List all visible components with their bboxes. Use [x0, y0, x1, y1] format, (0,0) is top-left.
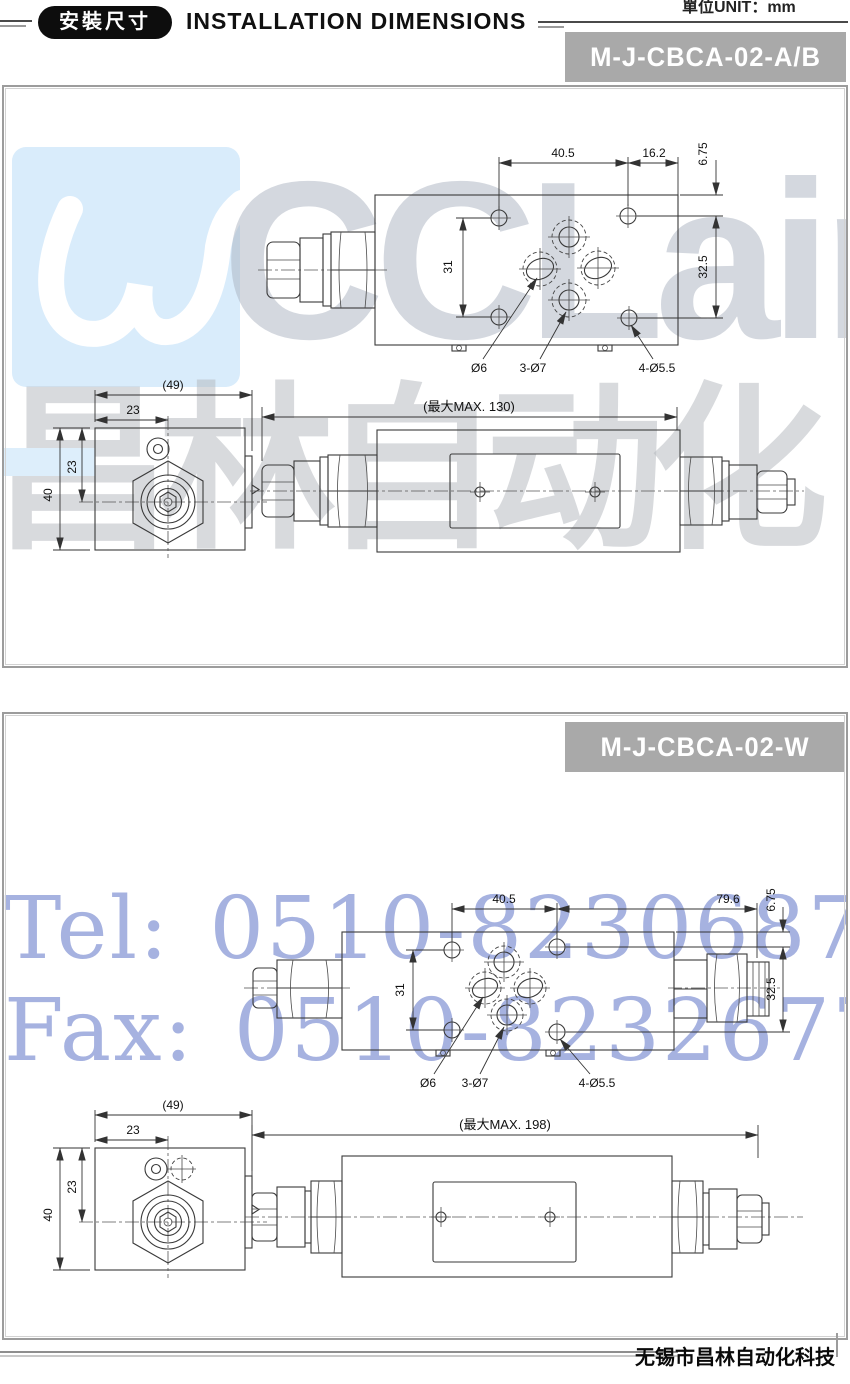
- dim-label: 6.75: [696, 142, 710, 166]
- dimensions: (49) 23 40 23: [41, 378, 252, 550]
- dim-label: 31: [441, 260, 455, 274]
- dim-label: 32.5: [764, 977, 778, 1001]
- dim-label: 16.2: [642, 146, 666, 160]
- dim-label: 40: [41, 1208, 55, 1222]
- corner-holes-label: 4-Ø5.5: [579, 1076, 616, 1090]
- dim-label: (49): [162, 378, 183, 392]
- dim-label: 6.75: [764, 888, 778, 912]
- dimensions: (49) 23 40 23: [41, 1098, 252, 1270]
- dim-label: 32.5: [696, 255, 710, 279]
- dim-label: 31: [393, 983, 407, 997]
- centerlines: [79, 416, 267, 558]
- end-view-drawing-w: (49) 23 40 23: [33, 1082, 273, 1317]
- corner-holes: [440, 935, 569, 1044]
- footer-company: 无锡市昌林自动化科技: [600, 1341, 835, 1370]
- dimensions: 40.5 79.6 6.75 32.5 31: [393, 888, 790, 1032]
- port-diameter-label: Ø6: [420, 1076, 436, 1090]
- unit-label: 單位UNIT：mm: [682, 0, 796, 17]
- top-view-drawing-w: 40.5 79.6 6.75 32.5 31 Ø6 3-Ø7 4-Ø5.5: [238, 876, 810, 1090]
- corner-holes: [487, 204, 641, 330]
- max-length-label: (最大MAX. 198): [459, 1117, 551, 1132]
- ports3-diameter-label: 3-Ø7: [520, 361, 547, 375]
- header-rule-left-2: [0, 25, 26, 27]
- port-pattern: [519, 216, 619, 321]
- model-name-ab: M-J-CBCA-02-A/B: [590, 32, 821, 82]
- header-rule-right-1: [538, 21, 848, 23]
- dim-label: 40.5: [492, 892, 516, 906]
- dim-label: (49): [162, 1098, 183, 1112]
- fitting-left: [244, 960, 350, 1018]
- gauge-port: [147, 438, 169, 460]
- dim-label: 23: [65, 460, 79, 474]
- dim-label: 23: [65, 1180, 79, 1194]
- port-pattern: [465, 942, 550, 1035]
- header-rule-left-1: [0, 20, 32, 22]
- model-banner-ab: M-J-CBCA-02-A/B: [565, 32, 846, 82]
- valve-block: [95, 428, 259, 550]
- cartridge-fitting-left: [258, 232, 388, 308]
- centerlines: [79, 1136, 267, 1278]
- valve-body: [342, 932, 674, 1056]
- gauge-port: [145, 1155, 196, 1183]
- side-view-drawing-ab: (最大MAX. 130): [246, 381, 810, 591]
- model-name-w: M-J-CBCA-02-W: [600, 722, 809, 772]
- page-title: INSTALLATION DIMENSIONS: [186, 8, 526, 35]
- end-view-drawing-ab: (49) 23 40 23: [33, 366, 273, 601]
- ports3-diameter-label: 3-Ø7: [462, 1076, 489, 1090]
- footer-rule-1: [0, 1351, 678, 1353]
- valve-body: [342, 1156, 672, 1277]
- footer-rule-2: [0, 1355, 678, 1357]
- footer-corner-line: [836, 1333, 838, 1357]
- dimensions: (最大MAX. 198): [252, 1117, 758, 1189]
- leader-labels: Ø6 3-Ø7 4-Ø5.5: [420, 997, 616, 1090]
- dim-label: 23: [126, 403, 140, 417]
- top-view-drawing-ab: 40.5 16.2 6.75 32.5 31 Ø6 3-Ø7 4-Ø5.5: [253, 126, 803, 380]
- section-badge: 安裝尺寸: [38, 6, 172, 39]
- side-view-drawing-w: (最大MAX. 198): [243, 1093, 810, 1293]
- header-rule-right-2: [538, 26, 564, 28]
- valve-block: [95, 1148, 259, 1270]
- dim-label: 40.5: [551, 146, 575, 160]
- max-length-label: (最大MAX. 130): [423, 399, 515, 414]
- leader-labels: Ø6 3-Ø7 4-Ø5.5: [471, 278, 676, 375]
- dimensions: 40.5 16.2 6.75 32.5 31: [441, 142, 723, 318]
- dim-label: 40: [41, 488, 55, 502]
- corner-holes-label: 4-Ø5.5: [639, 361, 676, 375]
- model-banner-w: M-J-CBCA-02-W: [565, 722, 844, 772]
- port-diameter-label: Ø6: [471, 361, 487, 375]
- catalog-page: 單位UNIT：mm 安裝尺寸 INSTALLATION DIMENSIONS C…: [0, 0, 850, 1384]
- dim-label: 23: [126, 1123, 140, 1137]
- dim-label: 79.6: [716, 892, 740, 906]
